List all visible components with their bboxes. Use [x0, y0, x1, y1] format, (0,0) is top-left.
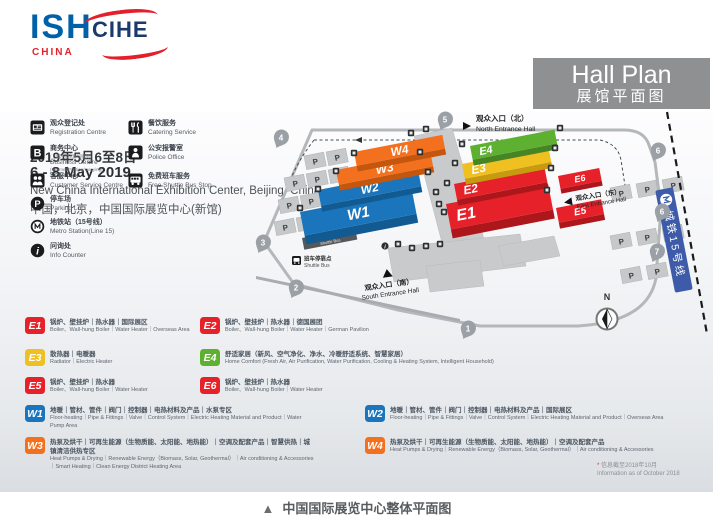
parking-lot: P [306, 170, 328, 188]
catering-icon [128, 120, 143, 135]
facility-zh: 公安报警室 [148, 145, 184, 154]
hall-badge-E6: E6 [200, 377, 220, 394]
legend-row-E4: E4舒适家居（新风、空气净化、净水、冷暖舒适系统、智慧家居）Home Comfo… [200, 349, 695, 367]
facility-zh: 问询处 [50, 243, 86, 252]
facility-item-police: 公安报警室Police Office [128, 145, 184, 162]
customer-service-icon [30, 173, 45, 188]
facility-sub-en: (Internet/Printing/Copying) [50, 167, 103, 172]
legend-en-W3: Heat Pumps & Drying｜Renewable Energy（Bio… [50, 456, 315, 471]
facility-item-metro: 地铁站（15号线）Metro Station(Line 15) [30, 219, 114, 236]
map-marker-4: 4 [270, 127, 292, 151]
parking-lot: P [636, 228, 658, 246]
hall-badge-W1: W1 [25, 405, 45, 422]
facility-item-customer-service: 客服中心Customer Service Centre [30, 173, 123, 190]
legend-zh-E6: 锅炉、壁挂炉｜热水器 [225, 378, 620, 387]
facility-zh: 停车场 [50, 196, 83, 205]
ish-logo: ISH [30, 8, 93, 47]
facility-icon [441, 209, 447, 215]
caption-triangle-icon: ▲ [262, 501, 275, 516]
facility-item-registration: 观众登记处Registration Centre [30, 120, 106, 137]
facility-icon [436, 201, 442, 207]
south-entrance-arrow-icon [382, 268, 393, 277]
facility-en: Catering Service [148, 129, 196, 137]
legend-en-W4: Heat Pumps & Drying｜Renewable Energy（Bio… [390, 447, 695, 455]
svg-text:5: 5 [443, 116, 448, 125]
shuttle-bus-stop: 班车停靠点 Shuttle Bus [292, 255, 332, 270]
hall-label-E4: E4 [478, 144, 494, 158]
facility-icon [409, 245, 415, 251]
facility-item-business: B商务中心(上网/打印/复印服务)Business Centre(Interne… [30, 145, 103, 173]
facility-en: Info Counter [50, 252, 86, 260]
svg-text:North Entrance Hall: North Entrance Hall [476, 126, 536, 133]
svg-text:Shuttle Bus: Shuttle Bus [304, 263, 330, 269]
facility-zh: 商务中心 [50, 145, 103, 154]
facility-icon [425, 169, 431, 175]
facility-en: Registration Centre [50, 129, 106, 137]
parking-lot: P [646, 262, 668, 280]
hall-badge-W3: W3 [25, 437, 45, 454]
facility-en: Police Office [148, 154, 184, 162]
legend-row-E2: E2锅炉、壁挂炉｜热水器｜德国展团Boiler、Wall-hung Boiler… [200, 317, 620, 335]
svg-text:P: P [34, 199, 40, 209]
facility-zh: 地铁站（15号线） [50, 219, 114, 228]
hall-badge-E2: E2 [200, 317, 220, 334]
svg-text:班车停靠点: 班车停靠点 [304, 255, 332, 263]
svg-text:3: 3 [261, 239, 266, 248]
facility-en: Free Shuttle Bus Stop [148, 182, 212, 190]
facility-zh: 免费班车服务 [148, 173, 212, 182]
caption-text: 中国国际展览中心整体平面图 [282, 501, 451, 516]
facility-icon [423, 126, 429, 132]
legend-row-E6: E6锅炉、壁挂炉｜热水器Boiler、Wall-hung Boiler｜Wate… [200, 377, 620, 395]
parking-lot: P [284, 174, 306, 192]
facility-icon [544, 187, 550, 193]
hall-E6: E6 [558, 168, 603, 194]
parking-lot: P [610, 232, 632, 250]
hall-plan-title-en: Hall Plan [533, 62, 710, 88]
facility-icon [444, 180, 450, 186]
svg-text:N: N [604, 292, 611, 302]
svg-text:6: 6 [660, 208, 665, 217]
facility-icon [315, 186, 321, 192]
hall-badge-E4: E4 [200, 349, 220, 366]
hall-badge-W4: W4 [365, 437, 385, 454]
page-caption: ▲中国国际展览中心整体平面图 [0, 498, 713, 517]
info-point-icon: i [381, 242, 388, 250]
legend-row-W3: W3热泵及烘干｜可再生能源（生物质能、太阳能、地热能）｜空调及配套产品｜智慧供热… [25, 437, 315, 472]
facility-icon [557, 125, 563, 131]
facility-icon [417, 149, 423, 155]
legend-en-W1: Floor-heating｜Pipe & Fittings｜Valve｜Cont… [50, 415, 315, 430]
footnote-en: Information as of October 2018 [597, 470, 680, 478]
footnote-zh: 信息截至2018年10月 [601, 463, 657, 469]
legend-en-E4: Home Comfort (Fresh Air, Air Purificatio… [225, 359, 695, 367]
svg-text:观众入口（北）: 观众入口（北） [476, 113, 529, 123]
parking-lot: P [326, 148, 348, 166]
hall-badge-E3: E3 [25, 349, 45, 366]
svg-text:4: 4 [279, 134, 284, 143]
legend-en-E2: Boiler、Wall-hung Boiler｜Water Heater｜Ger… [225, 327, 620, 335]
facility-zh: 客服中心 [50, 173, 123, 182]
map-marker-2: 2 [285, 277, 307, 301]
svg-text:2: 2 [294, 284, 299, 293]
facility-icon [459, 141, 465, 147]
cihe-logo: CIHE [92, 17, 149, 43]
metro-icon [30, 219, 45, 234]
facility-item-info: i问询处Info Counter [30, 243, 86, 260]
facility-icon [408, 130, 414, 136]
registration-icon [30, 120, 45, 135]
legend-zh-W2: 地暖｜管材、管件｜阀门｜控制器｜电热材料及产品｜国际展区 [390, 406, 695, 415]
legend-row-W1: W1地暖｜管材、管件｜阀门｜控制器｜电热材料及产品｜水泵专区Floor-heat… [25, 405, 315, 430]
police-icon [128, 145, 143, 160]
footnote: * 信息截至2018年10月 Information as of October… [597, 462, 680, 479]
facility-icon [297, 205, 303, 211]
site-map: PPPPPPPPPPPPPPPPPP 班车停靠点 Shuttle Bus W1W… [248, 100, 713, 340]
facility-icon [552, 145, 558, 151]
hall-badge-E5: E5 [25, 377, 45, 394]
info-icon: i [30, 243, 45, 258]
legend-en-E6: Boiler、Wall-hung Boiler｜Water Heater [225, 387, 620, 395]
facility-icon [437, 241, 443, 247]
hall-badge-E1: E1 [25, 317, 45, 334]
facility-icon [395, 241, 401, 247]
svg-text:6: 6 [656, 147, 661, 156]
svg-text:B: B [34, 147, 42, 159]
parking-lot: P [274, 218, 296, 236]
legend-zh-E4: 舒适家居（新风、空气净化、净水、冷暖舒适系统、智慧家居） [225, 350, 695, 359]
facility-item-catering: 餐饮服务Catering Service [128, 120, 196, 137]
facility-item-parking: P停车场Parking Lot [30, 196, 83, 213]
legend-zh-W1: 地暖｜管材、管件｜阀门｜控制器｜电热材料及产品｜水泵专区 [50, 406, 315, 415]
legend-zh-E2: 锅炉、壁挂炉｜热水器｜德国展团 [225, 318, 620, 327]
footnote-star: * [597, 463, 599, 469]
legend-zh-W4: 热泵及烘干｜可再生能源（生物质能、太阳能、地热能）｜空调及配套产品 [390, 438, 695, 447]
parking-lot: P [620, 266, 642, 284]
facility-en: Customer Service Centre [50, 182, 123, 190]
facility-icon [423, 243, 429, 249]
parking-lot: P [304, 152, 326, 170]
svg-text:7: 7 [655, 248, 660, 257]
facility-zh: 观众登记处 [50, 120, 106, 129]
facility-en: Metro Station(Line 15) [50, 228, 114, 236]
parking-icon: P [30, 196, 45, 211]
shuttle-bus-icon [292, 256, 301, 265]
facility-item-shuttle-bus: 免费班车服务Free Shuttle Bus Stop [128, 173, 212, 190]
facility-en: Parking Lot [50, 205, 83, 213]
shuttle-bus-icon [128, 173, 143, 188]
facility-en: Business Centre [50, 159, 103, 167]
business-icon: B [30, 145, 45, 160]
facility-icon [548, 165, 554, 171]
legend-row-W4: W4热泵及烘干｜可再生能源（生物质能、太阳能、地热能）｜空调及配套产品Heat … [365, 437, 695, 455]
facility-zh: 餐饮服务 [148, 120, 196, 129]
facility-icon [433, 189, 439, 195]
parking-lot: P [636, 180, 658, 198]
ish-china-label: CHINA [32, 47, 74, 58]
legend-zh-W3: 热泵及烘干｜可再生能源（生物质能、太阳能、地热能）｜空调及配套产品｜智慧供热｜城… [50, 438, 315, 456]
facility-icon [351, 150, 357, 156]
legend-en-W2: Floor-heating｜Pipe & Fittings｜Valve｜Cont… [390, 415, 695, 423]
facility-icon [452, 160, 458, 166]
hall-plan-page: ISH CHINA CIHE 2019年5月6至8日 6 - 8 May 201… [0, 0, 713, 524]
facility-icon [333, 168, 339, 174]
legend-row-W2: W2地暖｜管材、管件｜阀门｜控制器｜电热材料及产品｜国际展区Floor-heat… [365, 405, 695, 423]
hall-badge-W2: W2 [365, 405, 385, 422]
